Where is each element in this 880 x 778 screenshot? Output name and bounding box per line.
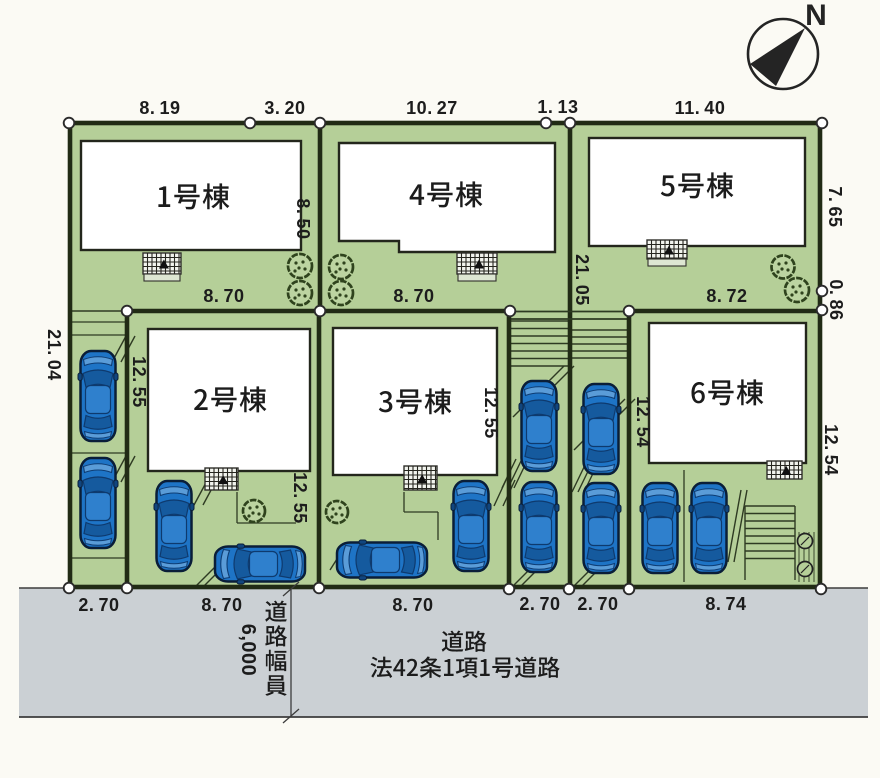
svg-text:8. 50: 8. 50 [293,198,313,239]
svg-text:2. 70: 2. 70 [519,594,560,614]
svg-text:12. 55: 12. 55 [129,356,149,408]
svg-text:8. 70: 8. 70 [201,595,242,615]
svg-text:2. 70: 2. 70 [78,595,119,615]
svg-text:6,000: 6,000 [237,624,259,677]
svg-text:N: N [805,0,827,32]
svg-text:1. 13: 1. 13 [537,97,578,117]
svg-text:8. 19: 8. 19 [139,98,180,118]
svg-text:3. 20: 3. 20 [264,98,305,118]
svg-text:0. 86: 0. 86 [826,279,846,320]
svg-text:12. 54: 12. 54 [633,396,653,448]
svg-text:12. 54: 12. 54 [821,424,841,476]
svg-text:10. 27: 10. 27 [406,98,458,118]
svg-text:21. 05: 21. 05 [572,254,592,306]
svg-text:21. 04: 21. 04 [44,329,64,381]
svg-text:8. 70: 8. 70 [203,286,244,306]
svg-text:8. 70: 8. 70 [392,595,433,615]
svg-text:8. 74: 8. 74 [705,594,746,614]
svg-text:8. 70: 8. 70 [393,286,434,306]
svg-text:8. 72: 8. 72 [706,286,747,306]
svg-text:12. 55: 12. 55 [290,472,310,524]
svg-text:2. 70: 2. 70 [577,594,618,614]
svg-text:12. 55: 12. 55 [481,387,501,439]
svg-text:7. 65: 7. 65 [825,186,845,227]
svg-text:11. 40: 11. 40 [675,98,726,118]
